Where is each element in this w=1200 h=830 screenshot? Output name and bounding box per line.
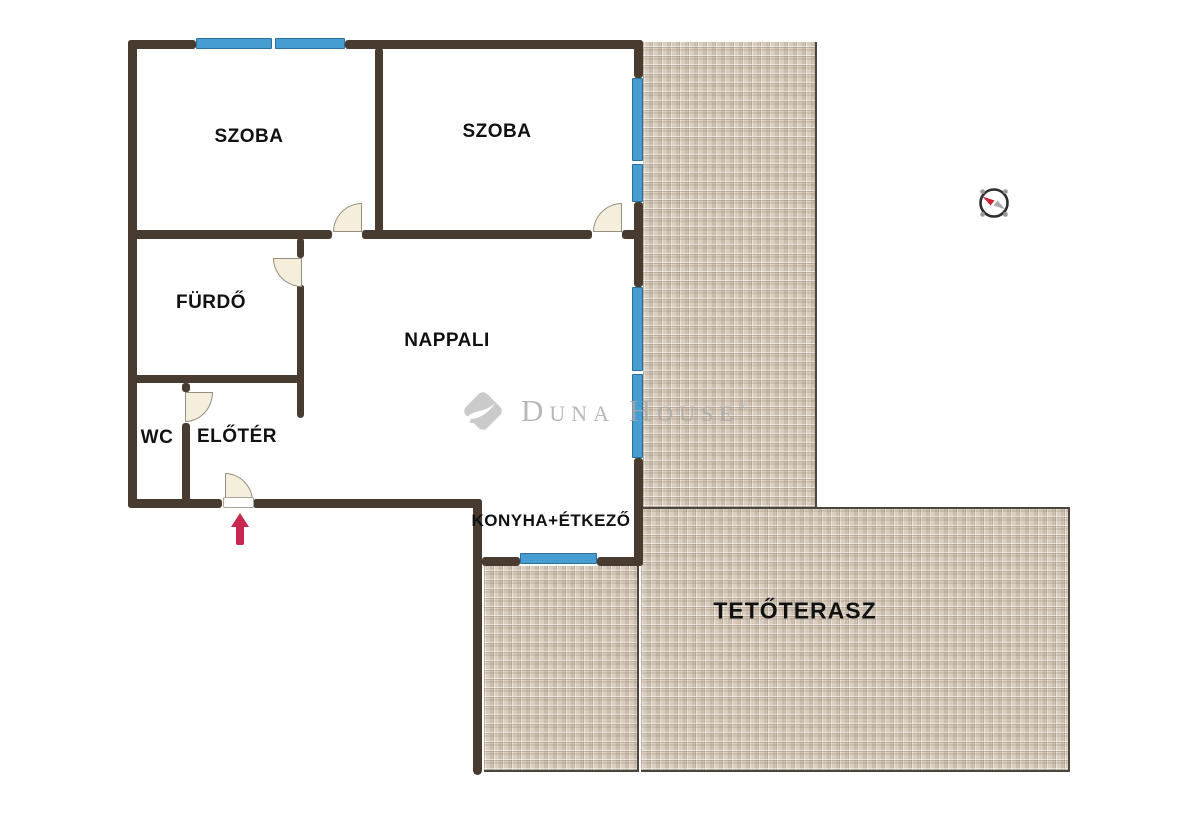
wall-szoba-divider <box>375 48 383 232</box>
window-kitchen <box>520 553 597 564</box>
window-right-1 <box>632 78 643 161</box>
door-arc-furdo <box>273 258 302 287</box>
wall-bottom-b <box>253 499 482 508</box>
wall-szoba-bottom-c <box>622 230 643 239</box>
window-right-3 <box>632 287 643 371</box>
window-right-4 <box>632 374 643 458</box>
room-label-szoba1: SZOBA <box>215 126 284 148</box>
wall-kitchen-bottom-a <box>482 557 520 566</box>
wall-szoba-bottom-b <box>362 230 592 239</box>
duna-house-logo-icon <box>455 383 511 439</box>
door-arc-szoba1 <box>333 203 362 232</box>
room-label-nappali: NAPPALI <box>404 330 489 352</box>
room-label-szoba2: SZOBA <box>463 121 532 143</box>
window-top-2 <box>275 38 345 49</box>
wall-furdo-right-a <box>297 238 304 258</box>
room-label-konyha: KONYHA+ÉTKEZŐ <box>471 511 630 531</box>
wall-right-c <box>634 458 643 566</box>
terrace-tile-under-kitchen <box>484 566 639 772</box>
room-label-furdo: FÜRDŐ <box>176 292 246 314</box>
room-label-wc: WC <box>141 427 174 449</box>
door-leaf-entrance <box>223 497 254 508</box>
door-arc-szoba2 <box>593 203 622 232</box>
compass-icon <box>974 183 1014 223</box>
wall-bottom-a <box>128 499 222 508</box>
wall-left <box>128 40 137 508</box>
room-label-terasz: TETŐTERASZ <box>713 598 876 625</box>
room-label-eloter: ELŐTÉR <box>197 426 277 448</box>
wall-top-right <box>345 40 643 49</box>
wall-wc-divider-a <box>182 383 190 392</box>
wall-wc-divider-b <box>182 423 190 508</box>
wall-top-left <box>128 40 196 49</box>
wall-furdo-bottom <box>128 375 304 383</box>
wall-furdo-right-b <box>297 285 304 418</box>
floor-plan: SZOBA SZOBA FÜRDŐ NAPPALI WC ELŐTÉR KONY… <box>0 0 1200 830</box>
wall-kitchen-left <box>473 499 482 775</box>
door-arc-wc <box>185 392 213 422</box>
terrace-tile-column <box>643 42 817 507</box>
wall-right-b <box>634 202 643 287</box>
window-right-2 <box>632 164 643 202</box>
window-top-1 <box>196 38 272 49</box>
terrace-tile-main <box>641 507 1070 772</box>
wall-right-a <box>634 40 643 78</box>
